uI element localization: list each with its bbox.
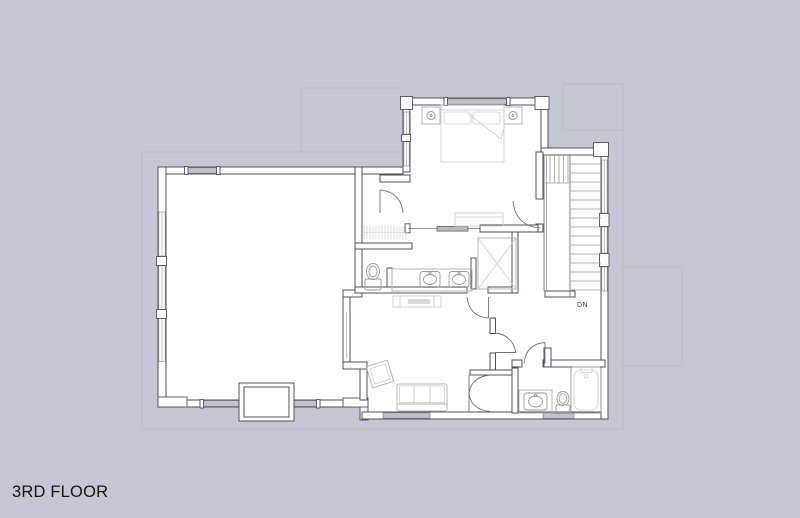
stairs-dn-label: DN [577,302,588,309]
floorplan-canvas: DN [0,0,800,518]
floor-title: 3RD FLOOR [12,483,108,502]
fireplace-icon [239,383,294,421]
floorplan-drawing: DN [0,0,800,518]
